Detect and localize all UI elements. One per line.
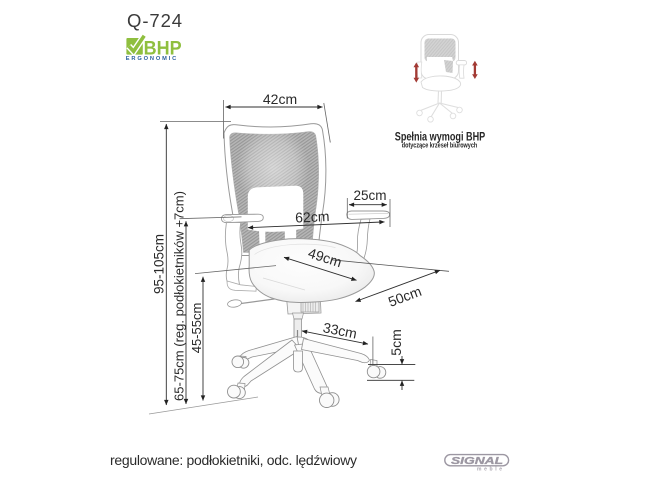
svg-text:62cm: 62cm xyxy=(295,208,330,225)
svg-text:dotyczące krzeseł biurowych: dotyczące krzeseł biurowych xyxy=(402,141,478,150)
svg-text:45-55cm: 45-55cm xyxy=(189,303,204,354)
svg-text:5cm: 5cm xyxy=(388,329,404,355)
svg-text:meble: meble xyxy=(477,466,502,472)
svg-text:SIGNAL: SIGNAL xyxy=(451,456,503,467)
svg-text:65-75cm (reg. podłokietników +: 65-75cm (reg. podłokietników +7cm) xyxy=(172,191,187,401)
svg-text:42cm: 42cm xyxy=(263,91,297,107)
svg-text:Q-724: Q-724 xyxy=(127,10,183,31)
svg-text:25cm: 25cm xyxy=(353,188,386,203)
svg-text:95-105cm: 95-105cm xyxy=(152,234,167,294)
svg-text:regulowane: podłokietniki, odc: regulowane: podłokietniki, odc. lędźwiow… xyxy=(110,452,357,468)
svg-text:ERGONOMIC: ERGONOMIC xyxy=(126,56,176,62)
